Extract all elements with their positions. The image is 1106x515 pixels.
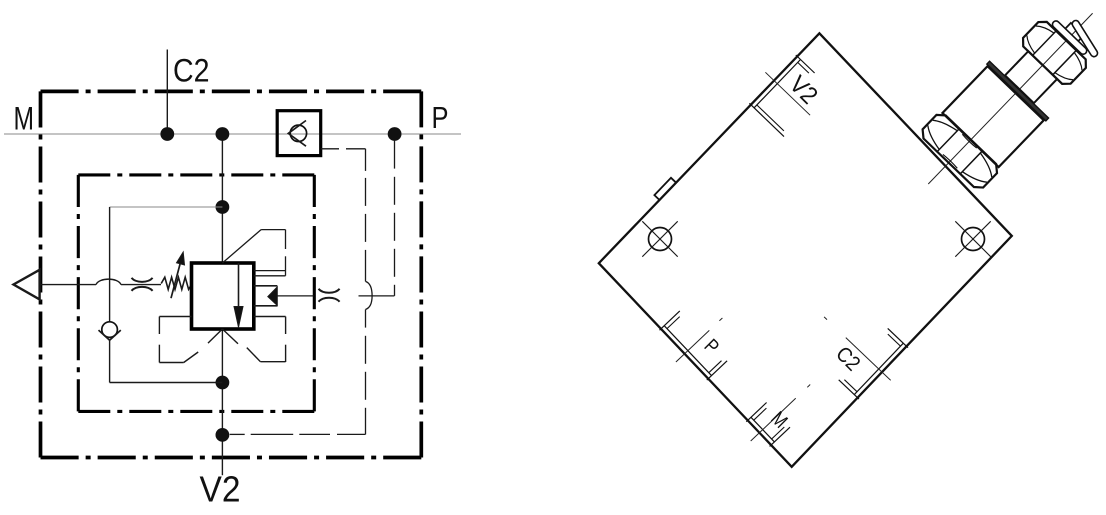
svg-text:P: P (432, 100, 449, 135)
svg-text:M: M (14, 101, 35, 137)
svg-text:V2: V2 (200, 469, 241, 510)
svg-text:C2: C2 (173, 53, 210, 89)
